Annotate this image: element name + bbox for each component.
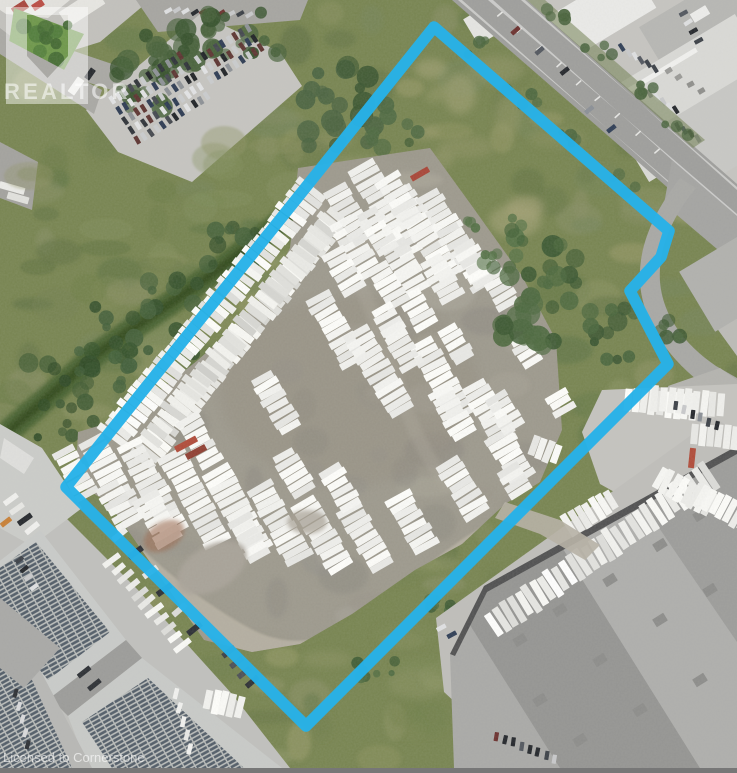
svg-text:REALTOR: REALTOR: [4, 79, 131, 104]
svg-text:Licensed to Cornerstone: Licensed to Cornerstone: [3, 750, 145, 765]
